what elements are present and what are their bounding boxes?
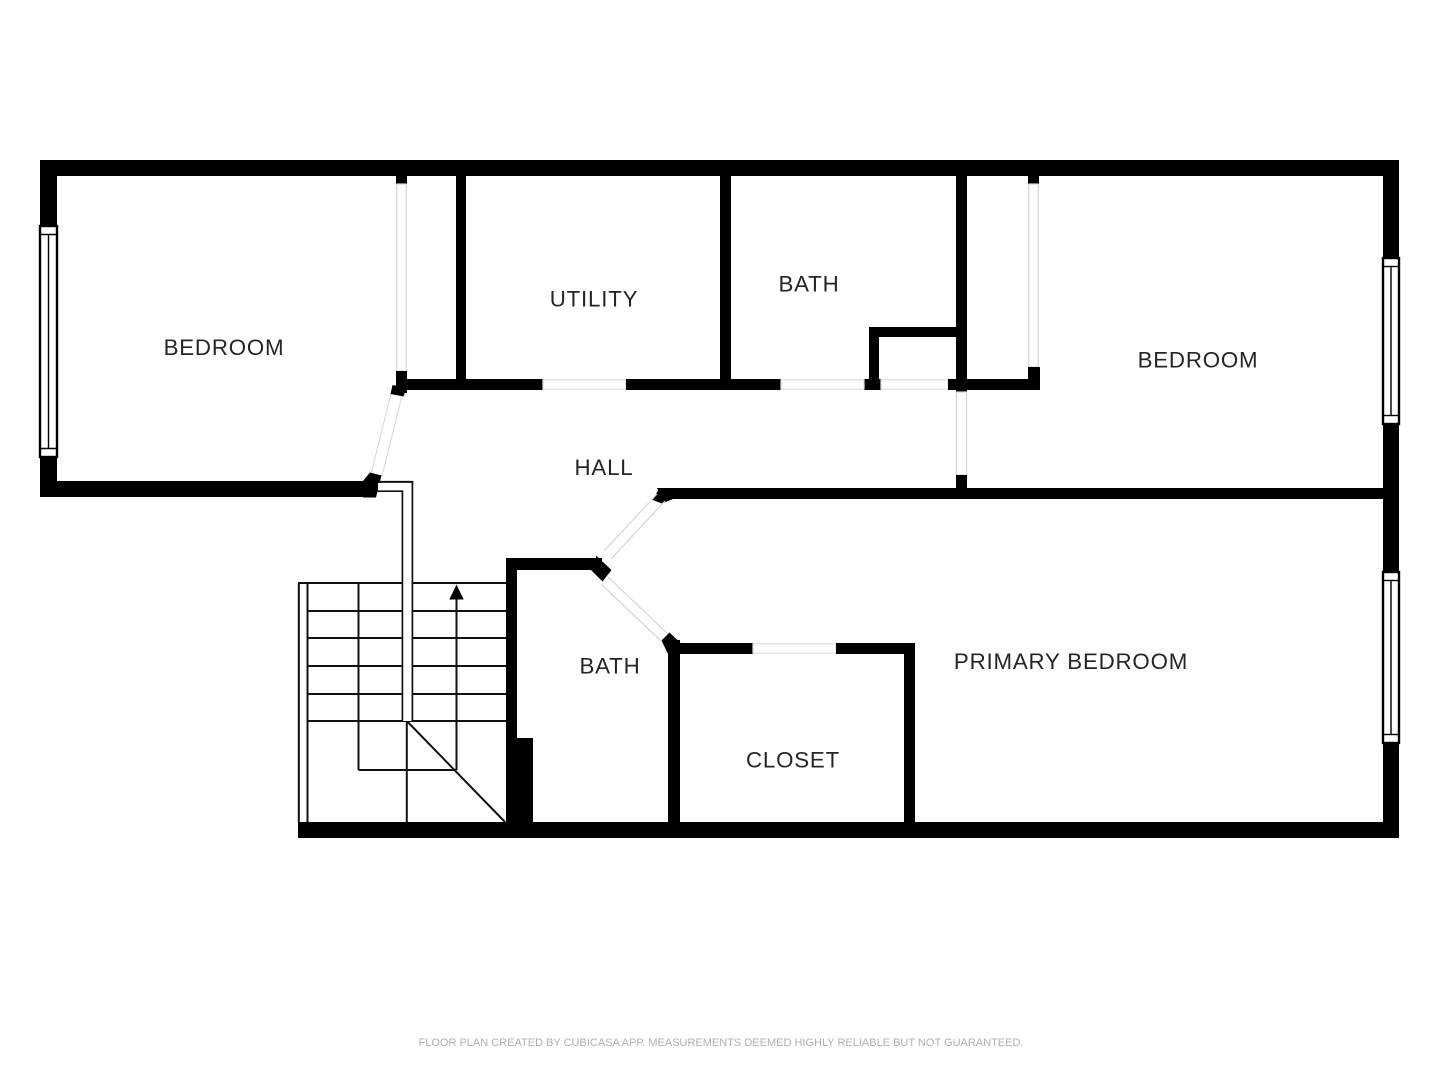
svg-text:FLOOR PLAN CREATED BY CUBICASA: FLOOR PLAN CREATED BY CUBICASA APP. MEAS…: [419, 1037, 1024, 1049]
svg-text:PRIMARY BEDROOM: PRIMARY BEDROOM: [954, 649, 1188, 674]
svg-text:BEDROOM: BEDROOM: [164, 335, 285, 360]
svg-text:BATH: BATH: [579, 654, 640, 679]
svg-text:BEDROOM: BEDROOM: [1138, 348, 1259, 373]
svg-text:HALL: HALL: [575, 455, 634, 480]
svg-text:CLOSET: CLOSET: [746, 748, 840, 773]
svg-text:BATH: BATH: [778, 272, 839, 297]
svg-text:UTILITY: UTILITY: [550, 287, 639, 312]
